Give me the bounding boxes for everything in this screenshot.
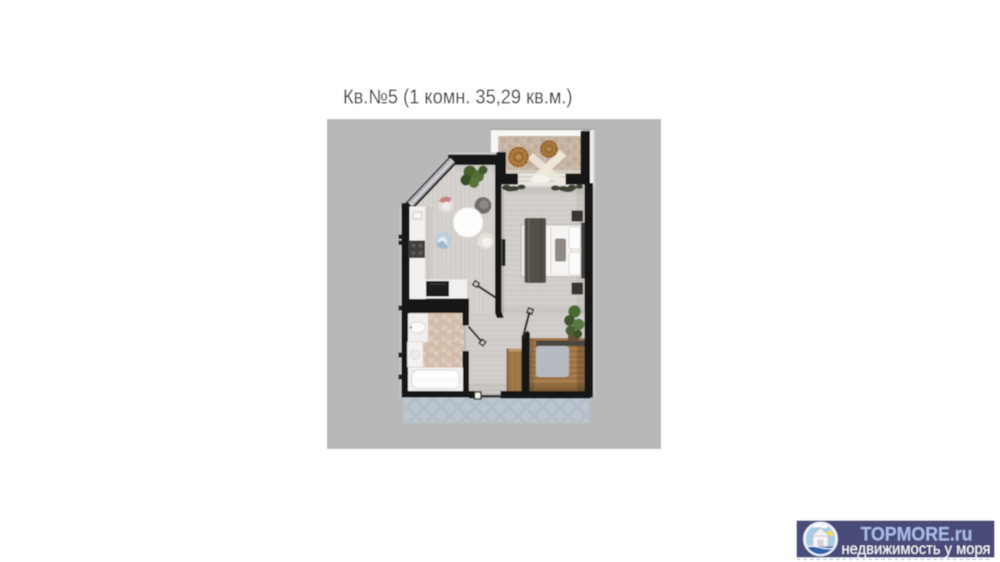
svg-text:недвижимость у моря: недвижимость у моря — [842, 541, 991, 558]
svg-text:Кв.№5 (1 комн. 35,29 кв.м.): Кв.№5 (1 комн. 35,29 кв.м.) — [343, 87, 573, 109]
